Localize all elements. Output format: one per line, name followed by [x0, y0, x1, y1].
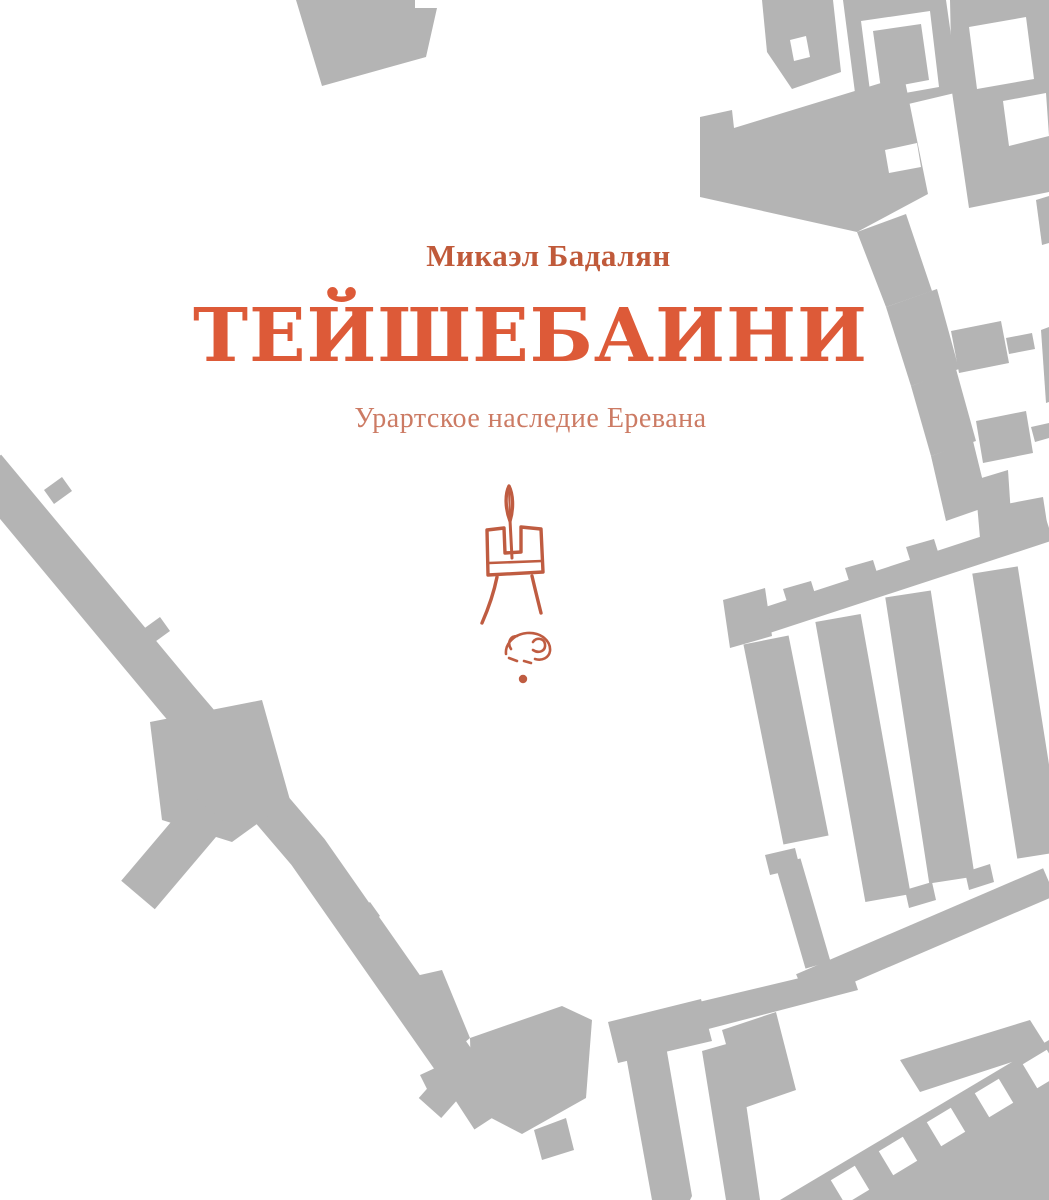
tower-spear-icon	[506, 486, 512, 558]
book-title: ТЕЙШЕБАИНИ	[6, 296, 1049, 376]
site-plan-fragment-top-left	[296, 0, 437, 86]
book-cover: Микаэл Бадалян ТЕЙШЕБАИНИ Урартское насл…	[0, 0, 1049, 1200]
site-plan-fragment-northeast	[700, 0, 1049, 546]
author-name: Микаэл Бадалян	[24, 240, 1049, 272]
site-plan-fragment-west-wall	[0, 468, 492, 1118]
lion-seal-icon	[506, 633, 550, 663]
book-subtitle: Урартское наследие Еревана	[6, 404, 1049, 434]
site-plan-fragment-southeast-band	[780, 1020, 1049, 1200]
site-plan-background	[0, 0, 1049, 1200]
seal-center-dot	[519, 675, 527, 683]
site-plan-fragment-storerooms	[723, 528, 1049, 988]
site-plan-fragments	[0, 0, 1049, 1200]
